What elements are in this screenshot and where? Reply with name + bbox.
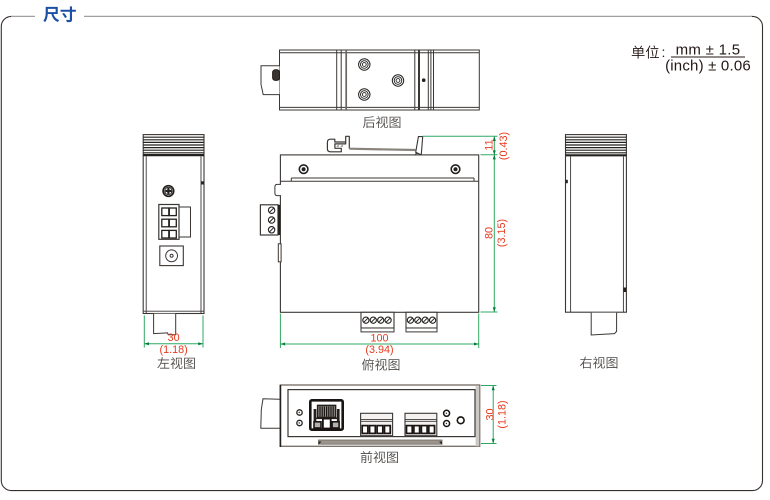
svg-text:(3.15): (3.15) [496,219,508,247]
svg-text:(0.43): (0.43) [498,132,510,160]
svg-text:(inch) ± 0.06: (inch) ± 0.06 [665,58,751,75]
svg-text:100: 100 [370,332,388,344]
svg-text:30: 30 [168,332,180,344]
svg-text:(3.94): (3.94) [365,344,393,356]
svg-text:(1.18): (1.18) [159,344,187,356]
svg-text:mm ± 1.5: mm ± 1.5 [676,42,741,59]
svg-text:80: 80 [484,227,496,239]
svg-text:11: 11 [484,139,496,150]
svg-text:30: 30 [485,408,497,420]
svg-text:(1.18): (1.18) [497,400,509,428]
